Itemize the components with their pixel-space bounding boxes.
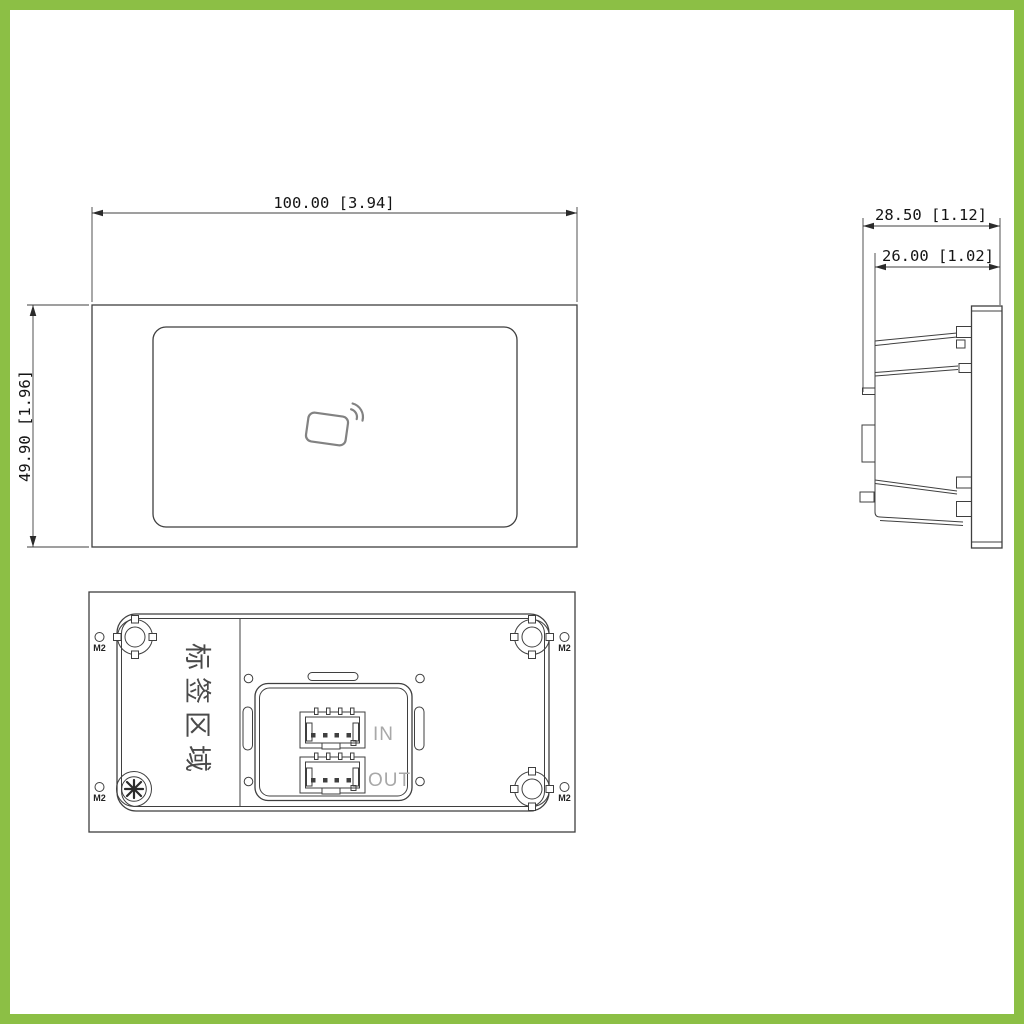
arrowhead — [863, 223, 874, 229]
m2-hole — [95, 783, 104, 792]
side-slot — [415, 707, 425, 750]
connector-pin — [335, 733, 340, 738]
m2-hole — [560, 633, 569, 642]
body-top-edge — [875, 370, 958, 377]
arrowhead — [30, 305, 37, 316]
contact-spring — [353, 768, 359, 786]
pin-tail — [339, 708, 343, 715]
arrowhead — [566, 210, 577, 217]
wave-arc-small — [351, 409, 357, 419]
pin-tail — [315, 753, 319, 760]
side-view: 28.50 [1.12] 26.00 [1.02] — [860, 206, 1002, 548]
top-clip-arm — [875, 333, 957, 341]
connector-inner — [306, 762, 360, 788]
pin-tail — [351, 753, 355, 760]
front-width-value: 100.00 [3.94] — [273, 194, 394, 212]
keying-notch — [322, 788, 340, 794]
side-depth-overall-value: 28.50 [1.12] — [875, 206, 987, 224]
m2-label: M2 — [558, 643, 571, 653]
mid-clip-hook — [959, 364, 972, 373]
connector-in — [300, 708, 365, 749]
keying-notch — [322, 743, 340, 749]
connector-out-label: OUT — [368, 770, 411, 791]
m2-label: M2 — [93, 793, 106, 803]
contact-spring — [353, 723, 359, 741]
connector-module: IN OUT — [255, 684, 412, 801]
m2-label: M2 — [558, 793, 571, 803]
boss-notch — [149, 634, 157, 641]
side-body-profile — [860, 327, 972, 526]
boss-notch — [546, 634, 554, 641]
rear-connector-block — [862, 425, 875, 462]
connector-in-label: IN — [373, 724, 394, 745]
pin-tail — [327, 753, 331, 760]
contactless-card-icon — [305, 404, 363, 447]
connector-pin — [323, 778, 328, 783]
front-height-value: 49.90 [1.96] — [16, 370, 34, 482]
side-faceplate-outline — [972, 306, 1003, 548]
boss-hole — [125, 627, 145, 647]
boss-notch — [132, 616, 139, 624]
boss-notch — [529, 768, 536, 776]
side-depth-body-dimension: 26.00 [1.02] — [875, 247, 1000, 341]
bottom-clip-hook — [957, 477, 972, 488]
boss-notch — [529, 616, 536, 624]
boss-notch — [511, 634, 519, 641]
label-area-text: 标签区域 — [181, 643, 212, 779]
connector-pin — [323, 733, 328, 738]
boss-notch — [529, 803, 536, 811]
boss-ring — [118, 620, 153, 655]
phillips-screw-icon — [125, 780, 143, 798]
front-height-dimension: 49.90 [1.96] — [16, 305, 89, 547]
small-hole — [416, 777, 425, 786]
m2-hole-top-left: M2 — [93, 633, 106, 654]
connector-pin — [347, 733, 352, 738]
boss-hole — [522, 627, 542, 647]
mount-boss-bottom-left-screw — [117, 772, 152, 807]
pin-tail — [327, 708, 331, 715]
boss-hole — [522, 779, 542, 799]
small-hole — [244, 674, 253, 683]
pin-tail — [315, 708, 319, 715]
technical-drawing-canvas: 100.00 [3.94] 49.90 [1.96] — [0, 0, 1024, 1024]
front-width-dimension: 100.00 [3.94] — [92, 194, 577, 302]
m2-hole-bottom-left: M2 — [93, 783, 106, 804]
bottom-clip-hook — [957, 502, 972, 517]
connector-out — [300, 753, 365, 794]
mount-boss-top-right — [511, 616, 554, 659]
m2-hole-top-right: M2 — [558, 633, 571, 654]
vent-slot — [308, 673, 358, 681]
connector-inner — [306, 717, 360, 743]
contact-spring — [307, 723, 313, 741]
rear-small-block — [860, 492, 874, 502]
pin-tail — [351, 708, 355, 715]
arrowhead — [92, 210, 103, 217]
m2-hole — [95, 633, 104, 642]
arrowhead — [30, 536, 37, 547]
top-clip-hook — [957, 340, 966, 348]
contact-spring — [307, 768, 313, 786]
top-clip-hook — [957, 327, 972, 338]
side-slot — [243, 707, 253, 750]
boss-notch — [511, 786, 519, 793]
side-faceplate — [972, 306, 1003, 548]
arrowhead — [989, 223, 1000, 229]
small-hole — [416, 674, 425, 683]
rear-view: 标签区域 — [89, 592, 575, 832]
connector-pin — [335, 778, 340, 783]
front-view: 100.00 [3.94] 49.90 [1.96] — [16, 194, 577, 547]
boss-notch — [114, 634, 122, 641]
side-depth-overall-dimension: 28.50 [1.12] — [863, 206, 1000, 392]
m2-label: M2 — [93, 643, 106, 653]
connector-pin — [347, 778, 352, 783]
mount-boss-bottom-right — [511, 768, 554, 811]
side-depth-body-value: 26.00 [1.02] — [882, 247, 994, 265]
small-hole — [244, 777, 253, 786]
top-clip-arm — [875, 337, 957, 346]
boss-notch — [546, 786, 554, 793]
boss-notch — [132, 651, 139, 659]
m2-hole — [560, 783, 569, 792]
rear-step — [863, 388, 876, 395]
pin-tail — [339, 753, 343, 760]
front-faceplate-outline — [92, 305, 577, 547]
front-reader-panel-outline — [153, 327, 517, 527]
card-outline — [305, 412, 349, 446]
boss-notch — [529, 651, 536, 659]
m2-hole-bottom-right: M2 — [558, 783, 571, 804]
body-top-edge — [875, 366, 958, 373]
